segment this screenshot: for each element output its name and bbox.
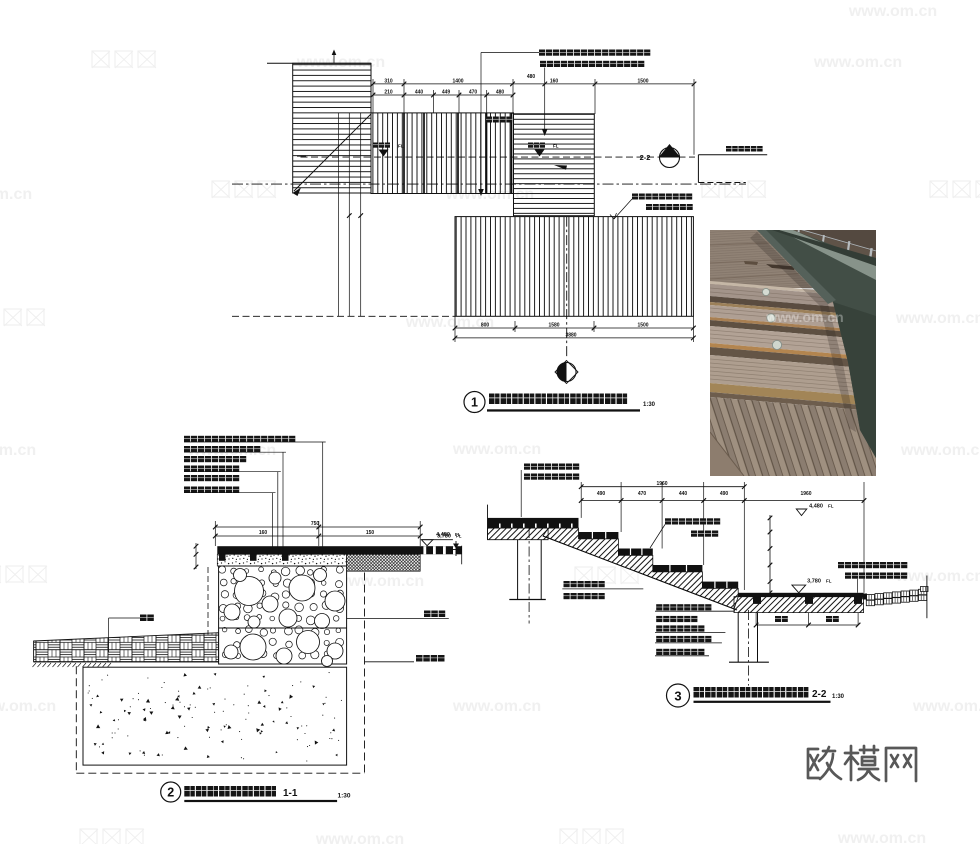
svg-text:1500: 1500 (637, 322, 648, 328)
svg-text:3880: 3880 (565, 332, 576, 338)
svg-text:1:30: 1:30 (643, 402, 656, 408)
svg-text:FL: FL (828, 504, 834, 509)
svg-text:1400: 1400 (452, 78, 463, 84)
svg-text:www.om.cn: www.om.cn (315, 831, 404, 844)
svg-text:449: 449 (442, 89, 451, 95)
svg-text:FL: FL (826, 579, 832, 584)
svg-text:FL: FL (455, 532, 461, 537)
svg-text:470: 470 (469, 89, 478, 95)
svg-text:www.om.cn: www.om.cn (452, 698, 541, 715)
svg-text:490: 490 (597, 491, 606, 497)
svg-text:www.om.cn: www.om.cn (912, 698, 980, 715)
svg-text:160: 160 (550, 78, 559, 84)
svg-text:800: 800 (481, 322, 490, 328)
svg-text:3: 3 (674, 689, 681, 704)
svg-text:FL: FL (398, 144, 404, 149)
svg-text:4,480: 4,480 (809, 504, 823, 510)
svg-text:www.om.cn: www.om.cn (895, 568, 980, 585)
svg-text:480: 480 (527, 74, 536, 80)
svg-text:2: 2 (167, 786, 174, 800)
svg-text:750: 750 (311, 521, 320, 527)
svg-text:490: 490 (720, 491, 729, 497)
svg-text:www.om.cn: www.om.cn (900, 442, 980, 459)
svg-text:2-2: 2-2 (812, 689, 827, 700)
svg-text:1-1: 1-1 (283, 788, 298, 799)
svg-text:www.om.cn: www.om.cn (837, 830, 926, 844)
svg-text:www.om.cn: www.om.cn (335, 573, 424, 590)
svg-text:www.om.cn: www.om.cn (0, 698, 56, 715)
svg-text:440: 440 (679, 491, 688, 497)
svg-text:1: 1 (471, 396, 478, 410)
svg-text:www.om.cn: www.om.cn (895, 310, 980, 327)
svg-text:1960: 1960 (800, 491, 811, 497)
svg-text:1:30: 1:30 (337, 793, 350, 800)
svg-text:www.om.cn: www.om.cn (452, 441, 541, 458)
svg-text:150: 150 (366, 530, 375, 536)
svg-text:FL: FL (553, 144, 559, 149)
svg-text:1:30: 1:30 (832, 694, 845, 700)
svg-text:www.om.cn: www.om.cn (848, 3, 937, 20)
svg-text:480: 480 (496, 89, 505, 95)
svg-text:www.om.cn: www.om.cn (0, 186, 32, 203)
svg-text:440: 440 (415, 89, 424, 95)
svg-text:www.om.cn: www.om.cn (813, 54, 902, 71)
svg-text:1580: 1580 (548, 322, 559, 328)
svg-text:210: 210 (384, 89, 393, 95)
svg-text:2-2: 2-2 (640, 153, 651, 162)
svg-text:www.om.cn: www.om.cn (0, 442, 36, 459)
svg-text:3,780: 3,780 (807, 579, 821, 585)
svg-text:160: 160 (259, 530, 268, 536)
svg-text:www.om.cn: www.om.cn (765, 309, 843, 325)
svg-text:310: 310 (384, 78, 393, 84)
svg-text:470: 470 (638, 491, 647, 497)
svg-text:4,480: 4,480 (436, 532, 450, 538)
svg-text:1500: 1500 (637, 78, 648, 84)
